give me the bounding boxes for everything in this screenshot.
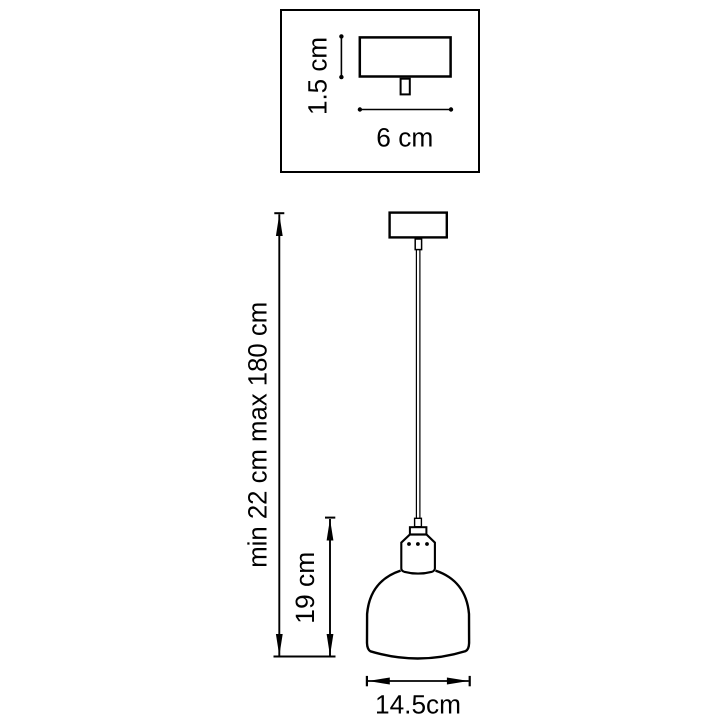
svg-text:1.5 cm: 1.5 cm bbox=[303, 37, 333, 115]
svg-text:14.5cm: 14.5cm bbox=[375, 690, 461, 720]
svg-text:min 22 cm max 180 cm: min 22 cm max 180 cm bbox=[243, 302, 273, 568]
svg-text:19 cm: 19 cm bbox=[290, 552, 320, 624]
svg-text:6 cm: 6 cm bbox=[376, 123, 433, 153]
